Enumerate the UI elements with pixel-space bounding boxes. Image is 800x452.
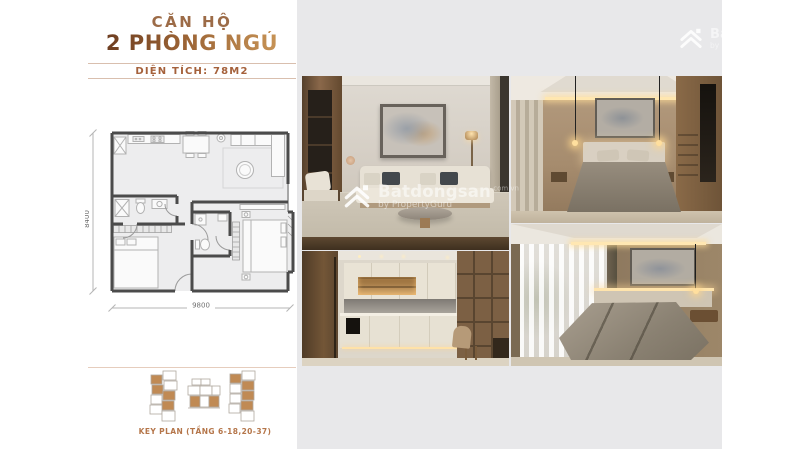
watermark-text: Batdongsan.com.vn by PropertyGuru — [378, 183, 519, 210]
key-plan — [146, 370, 264, 424]
pillow — [597, 149, 620, 162]
nightstand — [690, 310, 718, 322]
apartment-title-small: CĂN HỘ — [88, 13, 296, 31]
keyplan-units — [150, 371, 255, 421]
cove-light — [571, 242, 706, 245]
dining-table — [493, 338, 509, 358]
watermark-suffix: .com.vn — [491, 185, 519, 193]
wardrobe-shelves — [678, 134, 698, 176]
bedroom-photo-2 — [511, 224, 722, 366]
pendant-cord-left — [575, 76, 576, 142]
living-room-photo — [302, 76, 509, 250]
armchair-seat — [302, 190, 340, 201]
pillow-2 — [627, 149, 650, 162]
built-in-oven — [346, 318, 360, 334]
divider-top — [88, 63, 296, 64]
title-block: CĂN HỘ 2 PHÒNG NGỦ DIỆN TÍCH: 78M2 — [88, 0, 296, 56]
flower-vase — [346, 156, 355, 165]
pendant-bulb-left — [572, 140, 578, 146]
watermark-text: Batdongsan by PropertyGuru — [710, 28, 722, 50]
watermark-corner: Batdongsan by PropertyGuru — [678, 26, 722, 52]
door-edge — [334, 257, 336, 366]
wall-artwork — [380, 104, 446, 158]
wardrobe-right — [233, 222, 240, 260]
kitchen-photo — [302, 251, 509, 366]
listing-image: CĂN HỘ 2 PHÒNG NGỦ DIỆN TÍCH: 78M2 — [0, 0, 800, 452]
divider-bottom — [88, 78, 296, 79]
bedroom-photo-1 — [511, 76, 722, 223]
bed-left — [114, 237, 158, 288]
lit-open-shelf — [358, 277, 416, 295]
nightstand-left — [551, 172, 567, 182]
floor — [302, 358, 509, 366]
backsplash — [344, 299, 456, 313]
wardrobe-glass-panel — [700, 84, 716, 182]
brand-house-icon — [678, 26, 704, 52]
pendant-bulb — [693, 288, 699, 294]
photo-canvas: Batdongsan.com.vn by PropertyGuru Batdon… — [297, 0, 722, 449]
wall-artwork — [630, 248, 696, 286]
curtain-left — [511, 224, 520, 362]
pendant-cord — [695, 244, 696, 290]
wall-artwork — [595, 98, 655, 138]
info-panel: CĂN HỘ 2 PHÒNG NGỦ DIỆN TÍCH: 78M2 — [0, 0, 297, 452]
watermark-brand: Batdongsan — [378, 182, 491, 201]
sideboard — [302, 237, 509, 250]
headboard — [583, 142, 665, 164]
watermark-center: Batdongsan.com.vn by PropertyGuru — [342, 182, 519, 212]
pendant-bulb-right — [656, 140, 662, 146]
dining-chair — [452, 325, 472, 349]
dim-height-label: 8400 — [85, 210, 91, 228]
door-panel — [302, 251, 338, 366]
area-label: DIỆN TÍCH: 78M2 — [88, 66, 296, 77]
watermark-byline: by PropertyGuru — [710, 42, 722, 50]
ceiling-spotlights — [358, 255, 361, 258]
toe-kick-light — [342, 347, 458, 349]
floor-lamp-shade — [465, 131, 478, 140]
wardrobe-band — [114, 226, 172, 233]
apartment-title-main: 2 PHÒNG NGỦ — [88, 31, 296, 56]
watermark-brand: Batdongsan — [710, 28, 722, 42]
keyplan-divider — [88, 367, 296, 368]
watermark-byline: by PropertyGuru — [378, 201, 519, 210]
floor — [511, 211, 722, 223]
bed — [567, 162, 681, 212]
brand-house-icon — [342, 182, 372, 212]
dim-width-label: 9800 — [192, 302, 210, 310]
keyplan-label: KEY PLAN (TẦNG 6-18,20-37) — [120, 427, 290, 436]
floor-plan: 8400 9800 — [85, 124, 295, 320]
pendant-cord-right — [659, 76, 660, 142]
coffee-table-base — [420, 218, 430, 228]
